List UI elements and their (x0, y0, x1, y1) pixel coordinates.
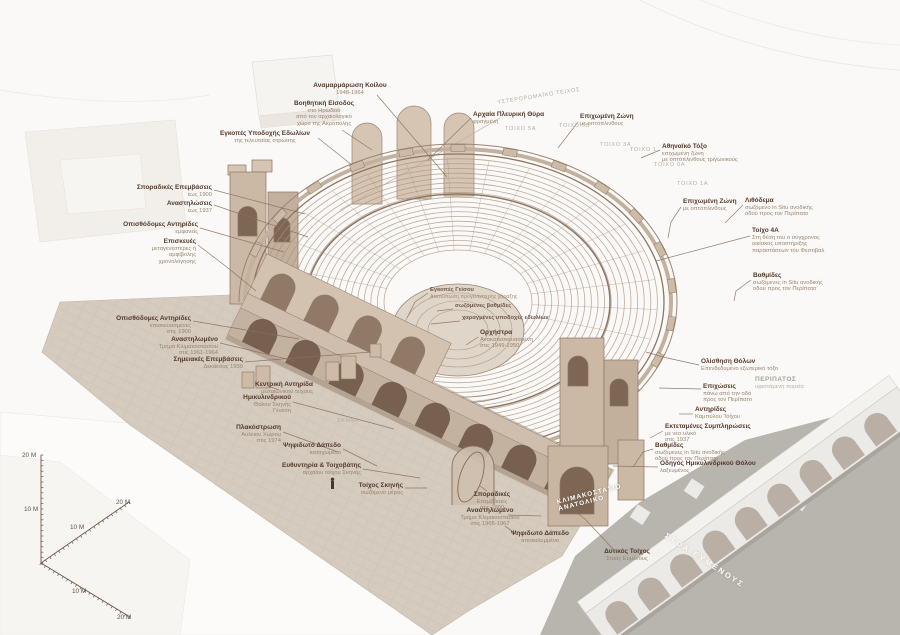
annotation-label: Βοηθητική Είσοδοςστο Ηρώδειοαπό τον αρχα… (294, 100, 354, 128)
annotation-label: Λιθόδεμασωζόμενο in Situ ανοδικήςοδού πρ… (745, 197, 813, 218)
scale-label: 10 M (24, 506, 38, 513)
leader-line (200, 228, 284, 252)
leader-line (407, 293, 428, 318)
annotation-label: Ψηφιδωτό Δάπεδοκαταχωμένο (283, 442, 341, 456)
annotation-label: ΠΕΡΙΠΑΤΟΣυφιστάμενη πορεία (755, 376, 804, 390)
leader-line (646, 352, 699, 365)
drawing-caption: ΤΟΙΧΟ 5Α (505, 126, 536, 132)
annotation-label: ΑναστηλωμένοΤμήμα Κλιμακοστασίουστις 196… (460, 507, 519, 528)
annotation-label: Αρχαία Πλευρική Θύραφραγμένη (473, 111, 544, 125)
annotation-label: Οδηγός Ημικυλινδρικού Θόλουλαξευμένος (660, 460, 756, 474)
drawing-caption: ΣΚΗΝΗ (337, 418, 360, 424)
annotation-label: Ευθυντηρία & Τοιχοβάτηςαρχαίου τοίχου Σκ… (282, 462, 361, 476)
leader-line (734, 280, 751, 301)
annotation-label: Ψηφιδωτό Δάπεδοαποκαλυμμένο (511, 530, 569, 544)
annotation-label: Δυτικός ΤοίχοςΣτοάς Ευμένους (604, 548, 650, 562)
annotation-label: Οπισθόδομες Αντηρίδεςεπισκευασμένεςστις … (116, 315, 191, 336)
annotation-label: Επιχωμένη Ζώνημε οπτόπλινθους (580, 113, 634, 127)
annotation-label: Σημειακές ΕπεμβάσειςΔεκαετίας 1930 (173, 356, 243, 370)
leader-line (431, 321, 460, 324)
leader-line (377, 95, 447, 177)
annotation-label: Σποραδικές Επεμβάσειςέως 1900 (137, 184, 212, 198)
leader-line (656, 236, 750, 261)
leader-line (633, 449, 653, 467)
annotation-label: Επιχώσειςπάνω από την οδόπρος τον Περίπα… (703, 383, 752, 404)
drawing-caption: ΤΟΙΧΟ 1 (630, 147, 657, 153)
leader-line (214, 205, 308, 237)
annotation-label: Επιχωμένη Ζώνημε οπτόπλινθους (683, 198, 737, 212)
annotation-label: Επισκευέςμεταγενέστερες ήαμφίβοληςχρονολ… (152, 238, 196, 266)
scale-label: 20 M (117, 614, 131, 621)
annotation-label: Τοίχος Σκηνήςσωζόμενο μέρος (359, 482, 403, 496)
leader-line (668, 207, 681, 238)
leader-line (650, 431, 663, 438)
scale-label: 10 M (70, 524, 84, 531)
annotation-label: ΑντηρίδεςΚαμπύλου Τοίχου (695, 406, 740, 420)
annotation-label: Οπισθόδομες Αντηρίδεςεμφανείς (123, 221, 198, 235)
annotation-label: χαραγμένες υποδοχές εδωλίων (462, 315, 549, 322)
annotation-label: Εγκοπές ΓείσουΑποτύπωση προγενέστερης χά… (430, 287, 517, 300)
leader-line (293, 402, 394, 429)
leader-line (428, 118, 471, 160)
leader-line (613, 466, 658, 467)
annotation-label: ΗμικυλινδρικούΘόλου ΣκηνήςΓένεση (243, 394, 291, 415)
annotation-label: Αναστηλώσειςέως 1937 (167, 200, 212, 214)
leader-line (659, 388, 701, 389)
scale-label: 20 M (22, 452, 36, 459)
annotation-label: Εγκοπές Υποδοχής Εδωλίωντης τελευταίας σ… (220, 130, 310, 144)
annotation-label: ΠλακόστρωσηΑύλειου Χώρουστις 1974 (236, 424, 281, 445)
drawing-caption: ΤΟΙΧΟ 1Α (677, 181, 708, 187)
leader-line (198, 245, 256, 291)
leader-line (437, 309, 453, 311)
leader-line (214, 190, 305, 214)
annotation-label: Ολίσθηση ΘόλωνΕπενδεδυμένο εξωτερικό τόξ… (701, 358, 778, 372)
annotation-label: Τοίχο 4ΑΣτη θέση του ο σύγχρονοςοικίσκος… (752, 227, 824, 255)
scale-label: 20 M (116, 499, 130, 506)
annotation-label: Βαθμίδεςσωζόμενες in Situ ανοδικήςοδού π… (753, 272, 823, 293)
annotation-label: Αναμαρμάρωση Κοίλου1948-1964 (313, 82, 386, 96)
scale-label: 10 M (72, 588, 86, 595)
leader-line (318, 138, 352, 165)
annotation-label: Αθηναϊκό Τόξοεπιχωμένη ζώνημε οπτόπλινθο… (662, 143, 738, 164)
annotation-label: ΟρχήστραΑνακατασκευασμένηστις 1949-1950 (480, 329, 533, 350)
leader-line (466, 337, 478, 345)
archaeological-axonometric-diagram: Αναμαρμάρωση Κοίλου1948-1964Βοηθητική Εί… (0, 0, 900, 635)
drawing-caption: ΤΟΙΧΟ 3Α (600, 142, 631, 148)
annotation-label: ΑναστηλωμένοΤμήμα Κλιμακοστασίουστις 196… (159, 336, 218, 357)
annotation-label: σωζόμενες βαθμίδες (455, 303, 511, 310)
leader-line (363, 469, 420, 478)
leader-line (342, 130, 372, 150)
